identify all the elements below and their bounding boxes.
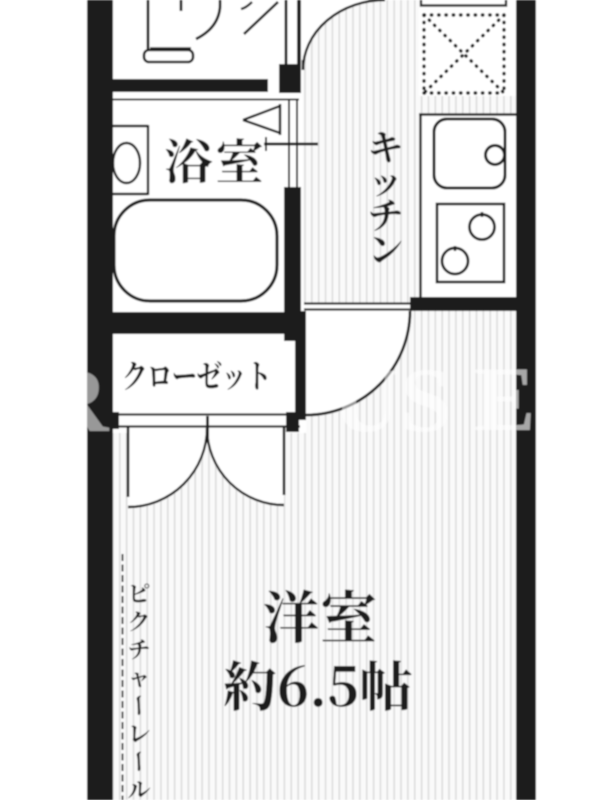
- svg-text:R: R: [42, 349, 110, 451]
- svg-text:U: U: [333, 349, 399, 451]
- svg-text:S: S: [400, 349, 451, 451]
- svg-text:E: E: [474, 348, 535, 450]
